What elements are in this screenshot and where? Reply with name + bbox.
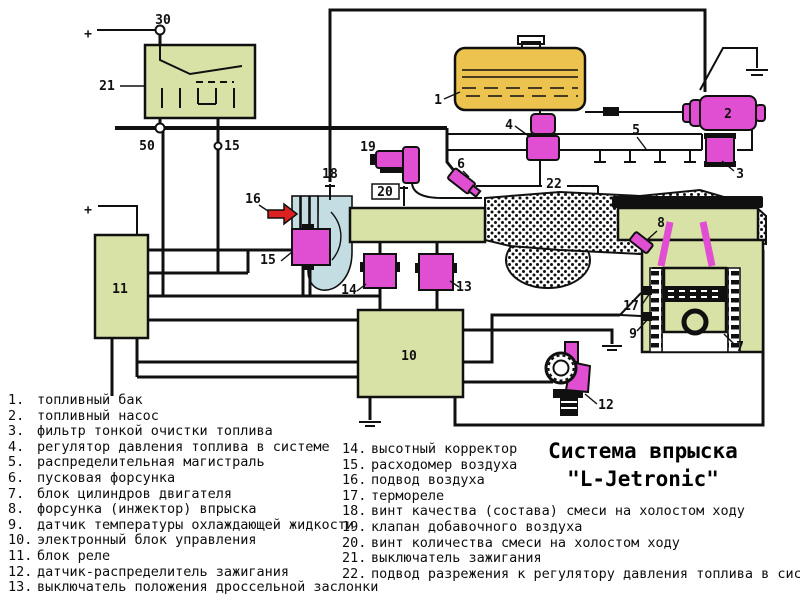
diagram-label-13: 13: [456, 280, 472, 295]
diagram-label-12: 12: [598, 398, 614, 413]
legend-item-text: топливный насос: [37, 409, 159, 425]
legend-item-text: винт количества смеси на холостом ходу: [371, 536, 680, 552]
diagram-label-30: 30: [155, 13, 171, 28]
fuel-pressure-regulator: [527, 114, 559, 160]
legend-item-number: 16.: [342, 473, 371, 489]
legend-item-text: электронный блок управления: [37, 533, 256, 549]
legend-item-number: 4.: [8, 440, 37, 456]
fuel-tank: [455, 36, 585, 110]
legend-item-number: 2.: [8, 409, 37, 425]
legend-item: 2.топливный насос: [8, 409, 378, 425]
legend-item: 10.электронный блок управления: [8, 533, 378, 549]
diagram-label-4: 4: [505, 118, 513, 133]
legend-item-text: пусковая форсунка: [37, 471, 175, 487]
diagram-label-20: 20: [377, 185, 393, 200]
legend-item-text: высотный корректор: [371, 442, 517, 458]
legend-item-text: винт качества (состава) смеси на холосто…: [371, 504, 745, 520]
legend-column-left: 1.топливный бак2.топливный насос3.фильтр…: [8, 393, 378, 596]
legend-item-text: блок реле: [37, 549, 110, 565]
diagram-label-3: 3: [736, 167, 744, 182]
air-flow-sensor: [292, 229, 330, 265]
legend-item: 6.пусковая форсунка: [8, 471, 378, 487]
legend-item-number: 20.: [342, 536, 371, 552]
legend-item-number: 15.: [342, 458, 371, 474]
legend-item: 8.форсунка (инжектор) впрыска: [8, 502, 378, 518]
legend-item-number: 8.: [8, 502, 37, 518]
additional-air-valve: [370, 147, 419, 183]
legend-item-text: датчик-распределитель зажигания: [37, 565, 289, 581]
throttle-position-switch: [415, 254, 457, 290]
legend-item: 9.датчик температуры охлаждающей жидкост…: [8, 518, 378, 534]
legend-item-text: подвод воздуха: [371, 473, 485, 489]
legend-item-text: датчик температуры охлаждающей жидкости: [37, 518, 354, 534]
diagram-label-15: 15: [224, 139, 240, 154]
title-line-1: Система впрыска: [518, 437, 768, 465]
legend-item: 12.датчик-распределитель зажигания: [8, 565, 378, 581]
ljetronic-schematic-page: +30501521+123456789101112131415161718192…: [0, 0, 800, 600]
diagram-label-5: 5: [632, 123, 640, 138]
legend-item-number: 3.: [8, 424, 37, 440]
diagram-label-1: 1: [434, 93, 442, 108]
diagram-label-2: 2: [724, 107, 732, 122]
diagram-label-+: +: [84, 203, 92, 218]
legend-item-number: 11.: [8, 549, 37, 565]
diagram-label-16: 16: [245, 192, 261, 207]
terminal-50: [156, 124, 165, 133]
legend-item-number: 17.: [342, 489, 371, 505]
diagram-title: Система впрыска "L-Jetronic": [518, 437, 768, 493]
diagram-label-18: 18: [322, 167, 338, 182]
legend-item-number: 14.: [342, 442, 371, 458]
diagram-label-9: 9: [629, 327, 637, 342]
legend-item-text: блок цилиндров двигателя: [37, 487, 232, 503]
fuel-filter: [704, 133, 736, 167]
legend-item: 18.винт качества (состава) смеси на холо…: [342, 504, 800, 520]
legend-item-number: 9.: [8, 518, 37, 534]
diagram-label-50: 50: [139, 139, 155, 154]
legend-item-number: 1.: [8, 393, 37, 409]
legend-item-text: расходомер воздуха: [371, 458, 517, 474]
legend-item: 13.выключатель положения дроссельной зас…: [8, 580, 378, 596]
diagram-label-14: 14: [341, 283, 357, 298]
legend-item-text: фильтр тонкой очистки топлива: [37, 424, 273, 440]
legend-item: 5.распределительная магистраль: [8, 455, 378, 471]
diagram-label-7: 7: [736, 340, 744, 355]
legend-item-text: выключатель зажигания: [371, 551, 542, 567]
legend-item: 21.выключатель зажигания: [342, 551, 800, 567]
diagram-label-19: 19: [360, 140, 376, 155]
legend-item: 3.фильтр тонкой очистки топлива: [8, 424, 378, 440]
terminal-15: [215, 143, 222, 150]
legend-item-number: 10.: [8, 533, 37, 549]
altitude-corrector: [360, 254, 400, 288]
legend-item-number: 13.: [8, 580, 37, 596]
legend-item-text: топливный бак: [37, 393, 143, 409]
throttle-body-duct: [350, 208, 485, 242]
legend-item-text: выключатель положения дроссельной заслон…: [37, 580, 378, 596]
legend-item: 4.регулятор давления топлива в системе: [8, 440, 378, 456]
legend-item-number: 7.: [8, 487, 37, 503]
diagram-label-6: 6: [457, 157, 465, 172]
ignition-distributor: [546, 342, 590, 416]
legend-item: 20.винт количества смеси на холостом ход…: [342, 536, 800, 552]
legend-item-text: регулятор давления топлива в системе: [37, 440, 330, 456]
title-line-2: "L-Jetronic": [518, 465, 768, 493]
legend-item: 22.подвод разрежения к регулятору давлен…: [342, 567, 800, 583]
diagram-label-11: 11: [112, 282, 128, 297]
legend-item-text: подвод разрежения к регулятору давления …: [371, 567, 800, 583]
legend-item: 7.блок цилиндров двигателя: [8, 487, 378, 503]
legend-item: 19.клапан добавочного воздуха: [342, 520, 800, 536]
legend-item: 11.блок реле: [8, 549, 378, 565]
legend-item: 1.топливный бак: [8, 393, 378, 409]
legend-item-number: 18.: [342, 504, 371, 520]
legend-item-text: термореле: [371, 489, 444, 505]
system-diagram: +30501521+123456789101112131415161718192…: [0, 0, 800, 440]
legend-item-text: распределительная магистраль: [37, 455, 265, 471]
diagram-label-17: 17: [623, 299, 639, 314]
diagram-label-15: 15: [260, 253, 276, 268]
diagram-label-8: 8: [657, 216, 665, 231]
air-flow-meter: [268, 196, 352, 296]
diagram-label-21: 21: [99, 79, 115, 94]
diagram-label-22: 22: [546, 177, 562, 192]
legend-item-number: 21.: [342, 551, 371, 567]
legend-item-number: 19.: [342, 520, 371, 536]
legend-item-number: 6.: [8, 471, 37, 487]
ignition-switch: [145, 26, 255, 150]
legend-item-number: 5.: [8, 455, 37, 471]
diagram-label-+: +: [84, 27, 92, 42]
legend-item-number: 12.: [8, 565, 37, 581]
legend-item-text: форсунка (инжектор) впрыска: [37, 502, 256, 518]
legend-item-number: 22.: [342, 567, 371, 583]
diagram-label-10: 10: [401, 349, 417, 364]
legend-item-text: клапан добавочного воздуха: [371, 520, 582, 536]
piston-pin: [684, 311, 706, 333]
